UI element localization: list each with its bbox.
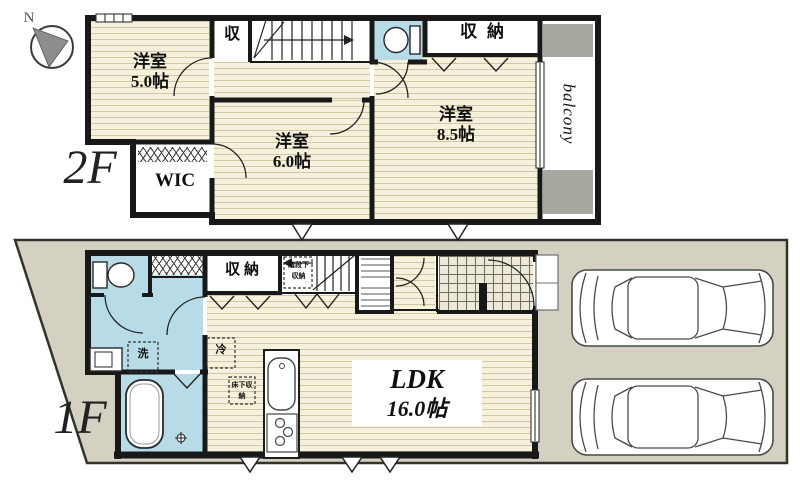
closet2f-label: 収 bbox=[215, 26, 249, 45]
room-name: 洋室 bbox=[236, 132, 348, 152]
porch-step bbox=[536, 255, 558, 310]
room-name: 洋室 bbox=[400, 105, 512, 125]
shoe-cabinet-floor bbox=[359, 256, 390, 310]
balcony-label: balcony bbox=[559, 67, 579, 162]
room-size: 8.5帖 bbox=[400, 125, 512, 145]
storage2f-label: 収納 bbox=[428, 22, 536, 42]
wic-label: WIC bbox=[144, 170, 206, 192]
fridge-label: 冷 bbox=[207, 344, 235, 357]
floor1-label: 1F bbox=[34, 390, 126, 447]
floor2-hall-floor bbox=[214, 62, 370, 100]
ldk-size: 16.0帖 bbox=[387, 396, 448, 422]
car-icon bbox=[572, 379, 773, 455]
floor2-label: 2F bbox=[44, 140, 136, 197]
room-size: 6.0帖 bbox=[236, 152, 348, 172]
genkan-tile-floor bbox=[439, 256, 533, 310]
pantry-closet-floor bbox=[394, 256, 435, 308]
ldk-label: LDK 16.0帖 bbox=[352, 360, 482, 426]
compass-icon bbox=[31, 26, 73, 68]
room-bedroom5-label: 洋室 5.0帖 bbox=[94, 52, 206, 92]
storage1f-label: 収納 bbox=[206, 262, 278, 280]
ldk-name: LDK bbox=[390, 364, 444, 396]
room-size: 5.0帖 bbox=[94, 72, 206, 92]
floor-storage-label: 床下収納 bbox=[230, 380, 254, 401]
toilet2f-floor bbox=[374, 20, 423, 60]
washer-label: 洗 bbox=[128, 348, 158, 361]
hall-closet-hatch bbox=[152, 256, 203, 275]
bathroom-floor bbox=[120, 374, 203, 453]
car-icon bbox=[572, 270, 773, 346]
floorplan-canvas: N 2F 1F 洋室 5.0帖 洋室 6.0帖 洋室 8.5帖 収 収納 WIC… bbox=[0, 0, 800, 482]
room-bedroom85-label: 洋室 8.5帖 bbox=[400, 105, 512, 145]
compass-north-label: N bbox=[18, 10, 40, 28]
wic-hanger-hatch bbox=[138, 147, 207, 162]
room-name: 洋室 bbox=[94, 52, 206, 72]
room-bedroom6-label: 洋室 6.0帖 bbox=[236, 132, 348, 172]
under-stairs-storage-label: 階段下収納 bbox=[286, 260, 311, 281]
